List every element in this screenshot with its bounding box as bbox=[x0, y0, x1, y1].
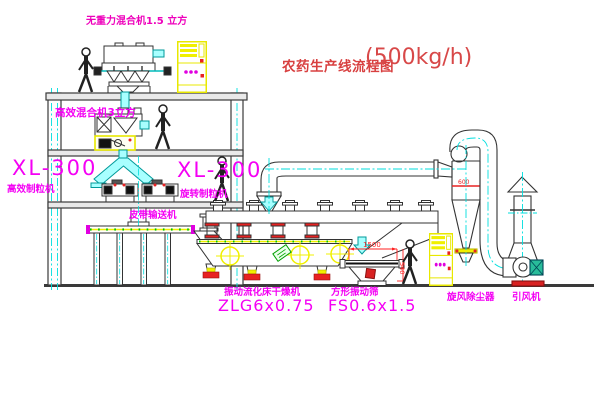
label-fan: 引风机 bbox=[512, 293, 541, 303]
pesticide-line-flow-diagram: 1500 540 600 bbox=[0, 0, 600, 403]
y-duct bbox=[91, 158, 158, 188]
label-gravity-free-mixer: 无重力混合机1.5 立方 bbox=[86, 12, 187, 27]
roof-slab bbox=[46, 93, 247, 100]
label-dryer-model: ZLG6x0.75 bbox=[218, 298, 315, 314]
label-cyclone: 旋风除尘器 bbox=[447, 293, 495, 303]
worker-figure bbox=[156, 105, 170, 149]
dim-cyclone-inlet: 600 bbox=[458, 179, 470, 186]
label-xl300-mid: XL-300 bbox=[177, 160, 262, 181]
label-rotary-granulator: 旋转制粒机 bbox=[180, 190, 228, 200]
worker-figure bbox=[79, 48, 93, 92]
granulator-unit bbox=[102, 180, 138, 202]
control-cabinet-ground bbox=[430, 234, 453, 286]
dim-screen-length: 1500 bbox=[363, 241, 381, 249]
mixer-outlet-stub bbox=[153, 50, 164, 57]
label-screen-model: FS0.6x1.5 bbox=[328, 298, 416, 314]
label-belt-conveyor: 皮带输送机 bbox=[129, 211, 177, 221]
dim-screen-height: 540 bbox=[398, 262, 406, 274]
diagram-title-capacity: (500kg/h) bbox=[365, 45, 472, 70]
induced-draft-fan bbox=[503, 257, 544, 286]
label-efficient-mixer: 高效混合机3立方 bbox=[55, 108, 136, 119]
cyclone-separator: 600 bbox=[451, 145, 480, 268]
control-cabinet-top bbox=[178, 42, 207, 93]
label-granulator-left: 高效制粒机 bbox=[7, 185, 55, 195]
label-xl300-left: XL-300 bbox=[12, 158, 97, 179]
vibrating-screen bbox=[340, 260, 404, 286]
rotary-granulators bbox=[102, 180, 178, 202]
belt-conveyor bbox=[86, 225, 195, 285]
